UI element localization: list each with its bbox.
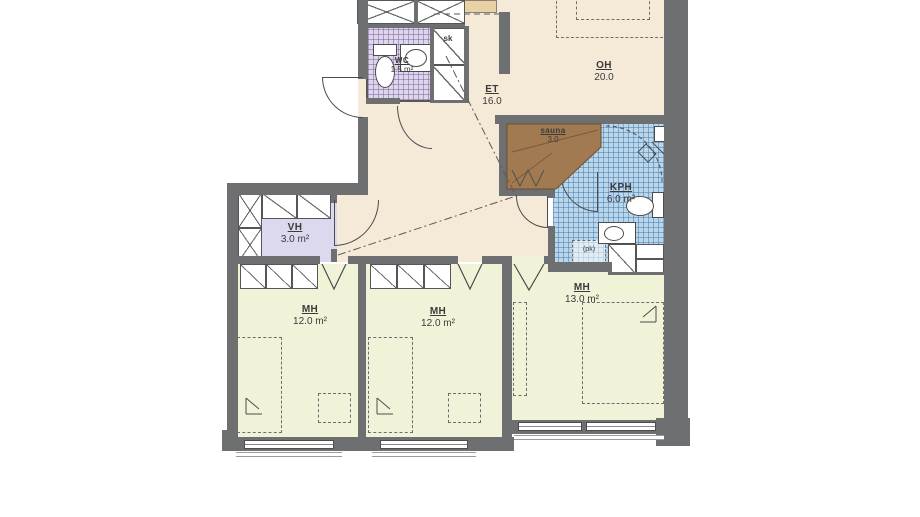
window-sill [514, 435, 664, 440]
room-code: MH [396, 306, 480, 318]
wall [366, 24, 465, 28]
room-area: 3.0 [526, 135, 580, 144]
table-outline [576, 0, 650, 20]
window-mh2 [380, 440, 468, 449]
wardrobe-outline-mh3 [513, 302, 527, 396]
room-label-sauna: sauna 3.0 [526, 126, 580, 144]
nightstand-outline-mh1 [318, 393, 351, 423]
window-sill [236, 452, 342, 457]
closet-cell-mh2 [370, 264, 397, 289]
room-code: MH [540, 282, 624, 294]
wall [238, 256, 320, 264]
floor-plan: OH 20.0 ET 16.0 WC 1.5 m² sk sauna 3.0 K… [0, 0, 920, 517]
room-code: VH [256, 222, 334, 234]
room-code: sauna [526, 126, 580, 135]
wall [358, 117, 368, 185]
nightstand-outline-mh2 [448, 393, 481, 423]
wall [664, 0, 688, 434]
closet-cell-mh1 [240, 264, 266, 289]
bed-outline-mh1 [237, 337, 282, 433]
wall [548, 226, 555, 266]
room-code: MH [268, 304, 352, 316]
wall [430, 100, 466, 103]
wall [495, 115, 664, 124]
wall [502, 256, 512, 437]
entrance-door-swing [322, 77, 363, 118]
window-mh3 [586, 422, 656, 431]
wall [222, 430, 238, 451]
closet-cell-mh2 [424, 264, 451, 289]
closet-cell-sk [432, 65, 466, 102]
closet-cell-mh1 [266, 264, 292, 289]
closet-cell-vh [262, 193, 297, 219]
label-washer-pk: (pk) [573, 246, 605, 254]
room-area: 6.0 m² [596, 194, 646, 206]
room-label-vh: VH 3.0 m² [256, 222, 334, 245]
room-label-kph: KPH 6.0 m² [596, 182, 646, 205]
room-area: 1.5 m² [374, 65, 430, 74]
closet-cell-mh1 [292, 264, 318, 289]
closet-cell [416, 0, 465, 24]
room-label-wc: WC 1.5 m² [374, 56, 430, 74]
room-area: 16.0 [468, 96, 516, 108]
room-code: (pk) [573, 246, 605, 254]
kph-sink-basin [604, 226, 624, 241]
room-area: 12.0 m² [268, 316, 352, 328]
wc-toilet-tank [373, 44, 397, 56]
room-code: KPH [596, 182, 646, 194]
room-area: 12.0 m² [396, 318, 480, 330]
wall [331, 249, 337, 262]
room-code: OH [580, 60, 628, 72]
closet-cell-mh2 [397, 264, 424, 289]
bed-outline-mh3 [582, 302, 664, 404]
wall [544, 256, 548, 264]
window-mh3 [518, 422, 582, 431]
room-area: 3.0 m² [256, 234, 334, 246]
wall [608, 272, 666, 275]
wall [358, 264, 366, 437]
wall [499, 124, 507, 192]
bed-outline-mh2 [368, 337, 413, 433]
wall [358, 0, 368, 79]
wall [656, 418, 690, 446]
room-area: 13.0 m² [540, 294, 624, 306]
window-mh1 [244, 440, 334, 449]
window-sill [372, 452, 476, 457]
wall [227, 183, 368, 195]
room-label-et: ET 16.0 [468, 84, 516, 107]
room-code: sk [434, 34, 462, 43]
wall [414, 0, 418, 24]
wall [499, 189, 555, 196]
wall [548, 168, 555, 198]
wall [499, 12, 510, 74]
room-label-mh2: MH 12.0 m² [396, 306, 480, 329]
room-area: 20.0 [580, 72, 628, 84]
room-label-mh3: MH 13.0 m² [540, 282, 624, 305]
wall [366, 98, 400, 104]
wall [548, 262, 612, 272]
closet-cell-mh3 [608, 244, 636, 274]
wall [482, 256, 502, 264]
room-code: ET [468, 84, 516, 96]
room-label-sk: sk [434, 34, 462, 43]
room-code: WC [374, 56, 430, 65]
room-label-oh: OH 20.0 [580, 60, 628, 83]
closet-cell-vh [297, 193, 331, 219]
wall [348, 256, 458, 264]
wall [227, 183, 238, 451]
room-label-mh1: MH 12.0 m² [268, 304, 352, 327]
sauna-heater-niche [505, 164, 553, 191]
closet-cell-mh3 [636, 244, 664, 259]
